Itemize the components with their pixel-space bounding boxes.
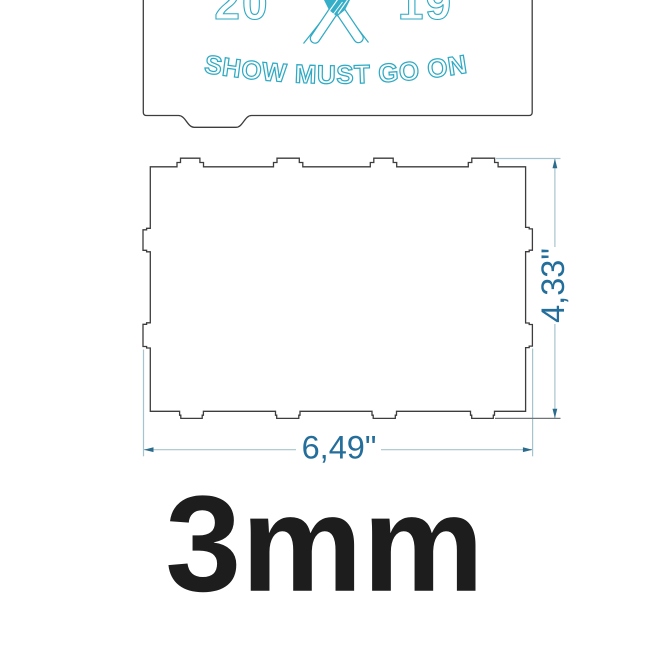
svg-text:20: 20 <box>214 0 269 29</box>
svg-text:SHOW MUST GO ON: SHOW MUST GO ON <box>203 49 470 90</box>
svg-text:4,33": 4,33" <box>535 248 571 323</box>
svg-text:19: 19 <box>398 0 453 29</box>
svg-text:3mm: 3mm <box>165 467 484 620</box>
svg-text:6,49": 6,49" <box>302 429 377 465</box>
